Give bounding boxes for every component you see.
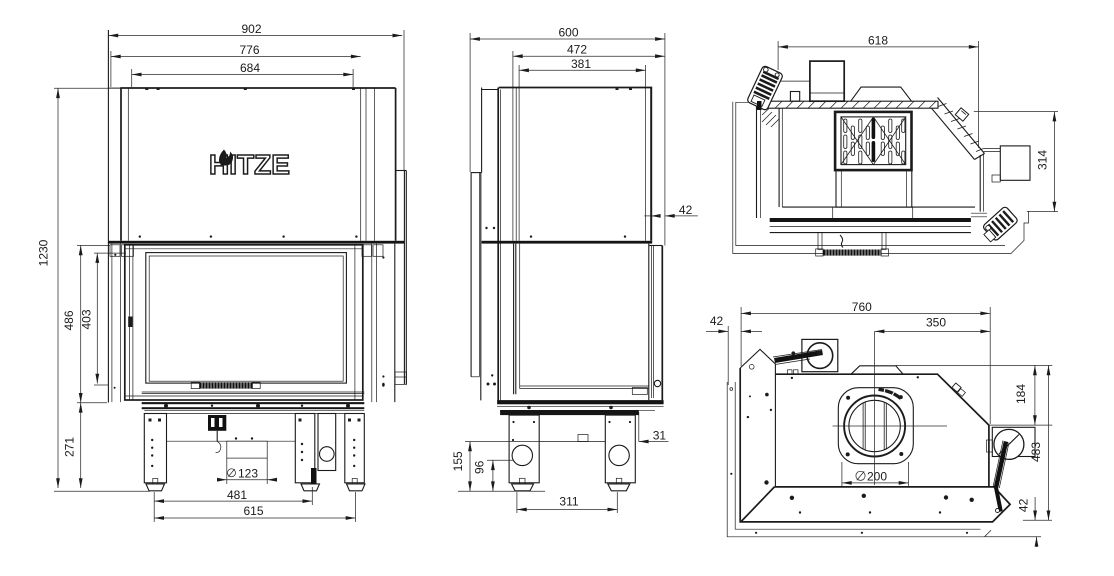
- svg-text:1230: 1230: [37, 239, 51, 266]
- svg-text:96: 96: [473, 460, 487, 474]
- svg-text:314: 314: [1035, 150, 1049, 170]
- svg-text:42: 42: [679, 203, 693, 217]
- svg-text:311: 311: [559, 495, 578, 509]
- svg-text:684: 684: [240, 61, 260, 75]
- svg-text:155: 155: [451, 451, 465, 471]
- svg-text:184: 184: [1014, 384, 1028, 404]
- svg-text:42: 42: [710, 314, 724, 328]
- svg-text:200: 200: [867, 470, 887, 484]
- svg-text:123: 123: [238, 466, 258, 480]
- svg-text:483: 483: [1029, 442, 1043, 462]
- svg-text:350: 350: [926, 316, 946, 330]
- svg-text:902: 902: [241, 22, 261, 36]
- svg-text:776: 776: [239, 43, 259, 57]
- svg-text:481: 481: [227, 488, 247, 502]
- svg-text:618: 618: [868, 34, 888, 48]
- svg-text:472: 472: [567, 43, 587, 57]
- svg-text:600: 600: [558, 26, 578, 40]
- svg-text:760: 760: [852, 300, 872, 314]
- svg-text:381: 381: [571, 57, 591, 71]
- svg-text:403: 403: [80, 309, 94, 329]
- svg-text:42: 42: [1017, 498, 1031, 512]
- svg-text:486: 486: [62, 310, 76, 330]
- svg-text:31: 31: [653, 429, 667, 443]
- svg-text:271: 271: [63, 437, 77, 457]
- svg-text:615: 615: [243, 504, 263, 518]
